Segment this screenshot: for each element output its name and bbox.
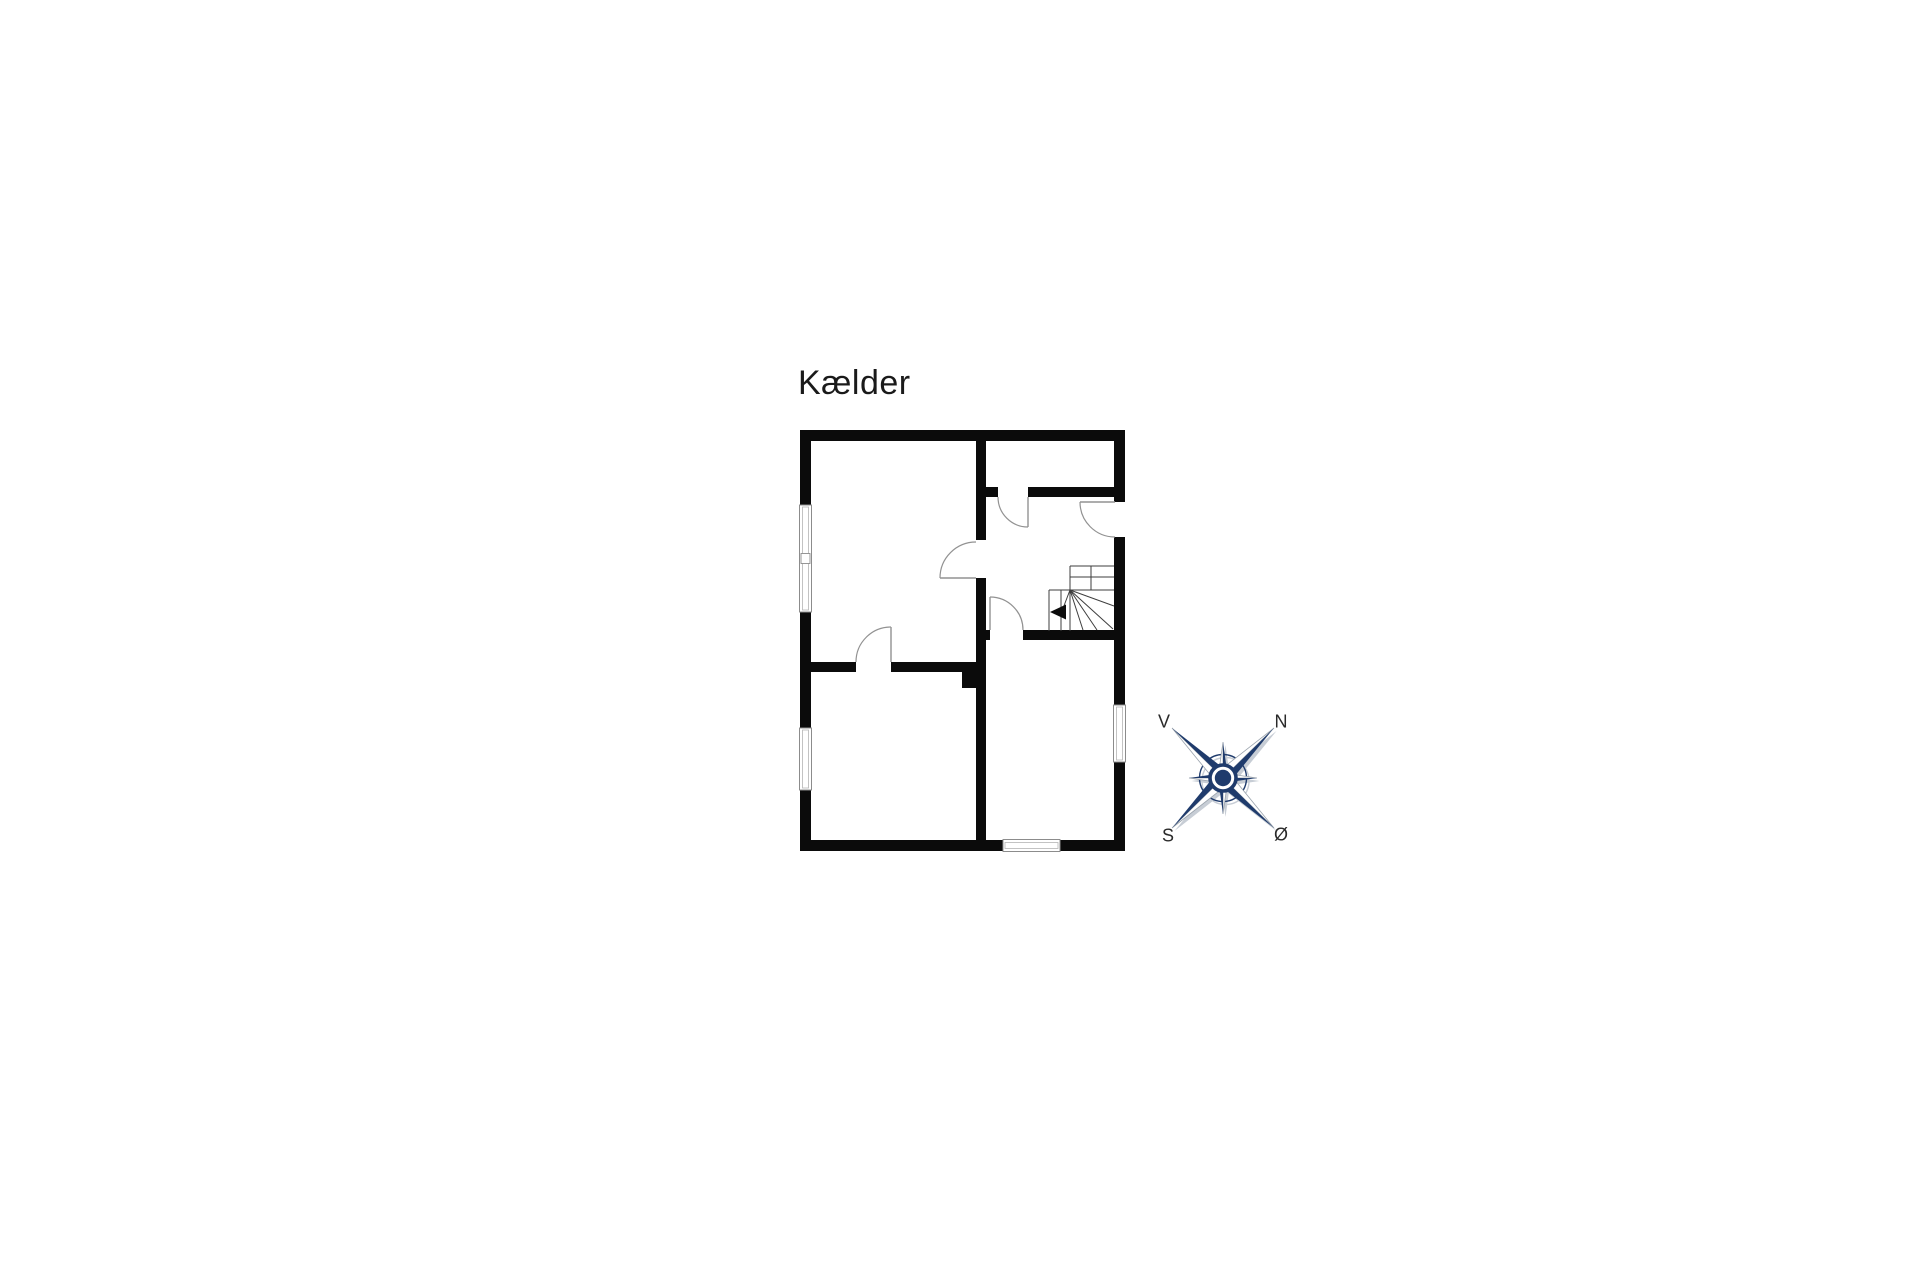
door-opening [1114,502,1125,537]
wall-segment [986,487,998,497]
door-swing-arc [998,497,1028,527]
wall-segment [976,578,986,851]
floor-plan [0,0,1920,1279]
window-pane [803,730,809,788]
wall-segment [800,430,1125,441]
wall-segment [986,630,990,640]
stair-line [1070,590,1097,630]
compass-hub-disc [1215,770,1231,786]
compass-label-north: N [1275,712,1288,733]
door-swing-arc [1080,502,1115,537]
door-swing-arc [940,542,976,578]
compass-label-south: S [1162,826,1174,847]
stair-direction-arrow [1050,605,1066,620]
window-pane [1117,707,1123,760]
door-swing-arc [856,627,891,662]
wall-segment [1114,430,1125,851]
wall-segment [976,430,986,540]
compass-label-east: Ø [1274,825,1288,846]
wall-segment [962,662,986,688]
wall-segment [1028,487,1114,497]
wall-segment [800,662,856,672]
floorplan-page: Kælder [0,0,1920,1279]
window-mullion [801,554,810,564]
wall-segment [1023,630,1114,640]
stair-line [1070,590,1114,606]
window-pane [1005,843,1058,849]
door-swing-arc [990,597,1023,630]
wall-segment [800,840,1125,851]
compass-label-west: V [1158,712,1170,733]
